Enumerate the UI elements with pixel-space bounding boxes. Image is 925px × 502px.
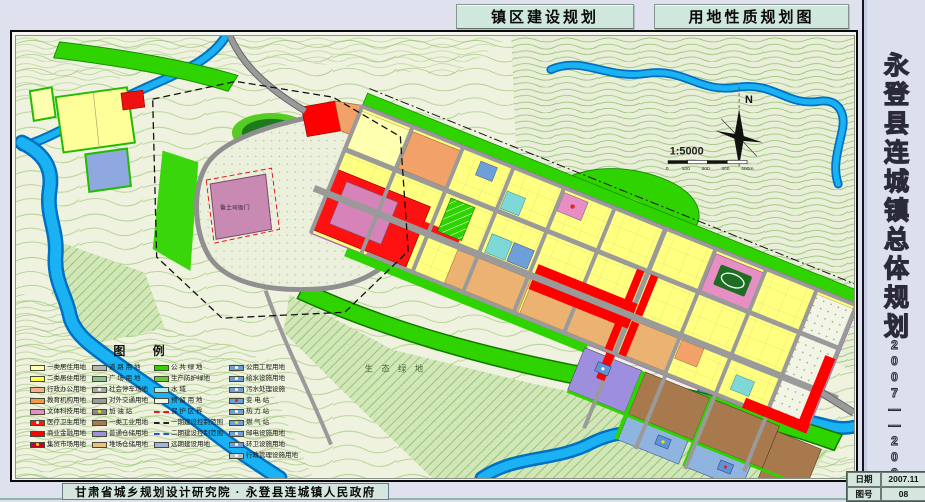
legend-item: 生产防护绿地 — [154, 374, 223, 383]
credit-box: 甘肃省城乡规划设计研究院 · 永登县连城镇人民政府 — [62, 483, 389, 500]
legend-swatch — [92, 376, 107, 382]
legend-label: 邮电设施用地 — [246, 430, 285, 438]
legend-swatch — [154, 433, 169, 435]
legend-swatch — [30, 376, 45, 382]
legend-swatch — [229, 376, 244, 382]
svg-text:300: 300 — [721, 166, 730, 172]
legend-swatch — [229, 409, 244, 415]
legend-swatch — [229, 365, 244, 371]
map-frame: 鲁土司衙门 — [10, 30, 858, 482]
legend-label: 广 场 用 地 — [109, 375, 140, 383]
legend-item: 水 域 — [154, 385, 223, 394]
legend-symbol — [36, 421, 39, 424]
legend-swatch — [229, 431, 244, 437]
legend-label: 二类居住用地 — [47, 375, 86, 383]
legend-symbol — [36, 443, 39, 446]
legend-swatch — [154, 398, 169, 404]
legend-item: 二类居住用地 — [30, 374, 86, 383]
legend-item: 商业金融用地 — [30, 429, 86, 438]
legend-label: 公 共 绿 地 — [171, 364, 202, 372]
plan-title: 永登县连城镇总体规划 — [877, 52, 913, 342]
legend-item: 对外交通用地 — [92, 396, 148, 405]
tab-landuse-plan: 用地性质规划图 — [654, 4, 849, 29]
legend-swatch — [92, 365, 107, 371]
legend-swatch — [154, 422, 169, 424]
legend-label: 堆场仓储用地 — [109, 441, 148, 449]
legend-item: 给水设施用地 — [229, 374, 298, 383]
svg-text:200: 200 — [701, 166, 710, 172]
legend-label: 社会停车场地 — [109, 386, 148, 394]
legend-item: 广 场 用 地 — [92, 374, 148, 383]
legend-label: 一类工业用地 — [109, 419, 148, 427]
tab-town-construction-plan: 镇区建设规划 — [456, 4, 634, 29]
legend-label: 一类居住用地 — [47, 364, 86, 372]
legend-label: 环卫设施用地 — [246, 441, 285, 449]
legend-symbol — [98, 410, 101, 413]
legend-label: 教育机构用地 — [47, 397, 86, 405]
legend-label: 给水设施用地 — [246, 375, 285, 383]
title-sidebar: 永登县连城镇总体规划 2007——2020 — [862, 0, 925, 500]
legend: 图 例 一类居住用地二类居住用地行政办公用地教育机构用地文体科技用地医疗卫生用地… — [30, 342, 322, 460]
legend-item: 社会停车场地 — [92, 385, 148, 394]
sheet-label: 图号 — [847, 487, 881, 502]
legend-swatch — [30, 365, 45, 371]
legend-swatch — [229, 398, 244, 404]
legend-item: 环卫设施用地 — [229, 440, 298, 449]
legend-item: 一类居住用地 — [30, 363, 86, 372]
svg-text:400m: 400m — [741, 166, 753, 172]
legend-swatch — [30, 420, 45, 426]
legend-swatch — [92, 420, 107, 426]
legend-item: 教育机构用地 — [30, 396, 86, 405]
legend-item: 热 力 站 — [229, 407, 298, 416]
legend-item: 医疗卫生用地 — [30, 418, 86, 427]
legend-symbol — [235, 366, 238, 369]
sheet-value: 08 — [881, 487, 925, 502]
date-label: 日期 — [847, 472, 881, 487]
svg-text:0: 0 — [666, 166, 669, 172]
legend-symbol — [235, 388, 238, 391]
legend-swatch — [229, 387, 244, 393]
yamen-label: 鲁土司衙门 — [220, 204, 250, 212]
legend-label: 对外交通用地 — [109, 397, 148, 405]
legend-label: 污水处理设施 — [246, 386, 285, 394]
legend-swatch — [92, 442, 107, 448]
svg-text:100: 100 — [682, 166, 691, 172]
legend-item: 变 电 站 — [229, 396, 298, 405]
legend-symbol — [235, 421, 238, 424]
legend-swatch — [30, 387, 45, 393]
legend-label: 医疗卫生用地 — [47, 419, 86, 427]
legend-item: 公 共 绿 地 — [154, 363, 223, 372]
legend-swatch — [30, 398, 45, 404]
legend-symbol — [235, 399, 238, 402]
legend-item: 保 护 区 界 — [154, 407, 223, 416]
legend-item: 一期建设控制范围 — [154, 418, 223, 427]
legend-item: 二期建设控制范围 — [154, 429, 223, 438]
legend-label: 热 力 站 — [246, 408, 269, 416]
legend-label: 道 路 用 地 — [109, 364, 140, 372]
legend-label: 生产防护绿地 — [171, 375, 210, 383]
legend-label: 变 电 站 — [246, 397, 269, 405]
legend-symbol — [98, 388, 101, 391]
legend-label: 保 护 区 界 — [171, 408, 202, 416]
legend-swatch — [154, 387, 169, 393]
legend-label: 普通仓储用地 — [109, 430, 148, 438]
date-value: 2007.11 — [881, 472, 925, 487]
legend-label: 燃 气 站 — [246, 419, 269, 427]
title-block-table: 日期 2007.11 图号 08 — [846, 471, 925, 502]
legend-label: 一期建设控制范围 — [171, 419, 223, 427]
legend-label: 集贸市场用地 — [47, 441, 86, 449]
legend-label: 公用工程用地 — [246, 364, 285, 372]
legend-item: 行政管理设施用地 — [229, 451, 298, 460]
legend-symbol — [235, 410, 238, 413]
legend-item: 文体科技用地 — [30, 407, 86, 416]
legend-columns: 一类居住用地二类居住用地行政办公用地教育机构用地文体科技用地医疗卫生用地商业金融… — [30, 363, 322, 460]
scale-text: 1:5000 — [670, 145, 704, 157]
legend-label: 预 留 用 地 — [171, 397, 202, 405]
legend-item: 远期建设用地 — [154, 440, 223, 449]
legend-swatch — [30, 409, 45, 415]
north-label: N — [745, 94, 753, 106]
legend-item: 邮电设施用地 — [229, 429, 298, 438]
legend-swatch — [229, 420, 244, 426]
legend-symbol — [235, 377, 238, 380]
legend-swatch — [154, 442, 169, 448]
legend-swatch — [154, 411, 169, 413]
legend-swatch — [30, 442, 45, 448]
legend-symbol — [235, 432, 238, 435]
legend-swatch — [92, 431, 107, 437]
legend-swatch — [229, 442, 244, 448]
legend-item: 预 留 用 地 — [154, 396, 223, 405]
legend-item: 行政办公用地 — [30, 385, 86, 394]
legend-swatch — [154, 376, 169, 382]
map-canvas: 鲁土司衙门 — [15, 35, 855, 479]
legend-symbol — [235, 443, 238, 446]
legend-label: 行政管理设施用地 — [246, 452, 298, 460]
legend-label: 水 域 — [171, 386, 186, 394]
legend-swatch — [154, 365, 169, 371]
legend-title: 图 例 — [30, 342, 260, 359]
legend-swatch — [92, 409, 107, 415]
eco-green-label: 生 态 绿 地 — [365, 363, 426, 373]
legend-label: 行政办公用地 — [47, 386, 86, 394]
legend-item: 一类工业用地 — [92, 418, 148, 427]
legend-swatch — [30, 431, 45, 437]
legend-swatch — [92, 387, 107, 393]
legend-item: 污水处理设施 — [229, 385, 298, 394]
legend-swatch — [229, 453, 244, 459]
commercial-block — [301, 101, 341, 137]
legend-item: 集贸市场用地 — [30, 440, 86, 449]
legend-symbol — [235, 454, 238, 457]
legend-label: 商业金融用地 — [47, 430, 86, 438]
legend-label: 二期建设控制范围 — [171, 430, 223, 438]
legend-item: 道 路 用 地 — [92, 363, 148, 372]
legend-item: 燃 气 站 — [229, 418, 298, 427]
legend-label: 加 油 站 — [109, 408, 132, 416]
legend-item: 公用工程用地 — [229, 363, 298, 372]
legend-label: 远期建设用地 — [171, 441, 210, 449]
legend-label: 文体科技用地 — [47, 408, 86, 416]
legend-item: 加 油 站 — [92, 407, 148, 416]
legend-swatch — [92, 398, 107, 404]
legend-item: 堆场仓储用地 — [92, 440, 148, 449]
legend-item: 普通仓储用地 — [92, 429, 148, 438]
